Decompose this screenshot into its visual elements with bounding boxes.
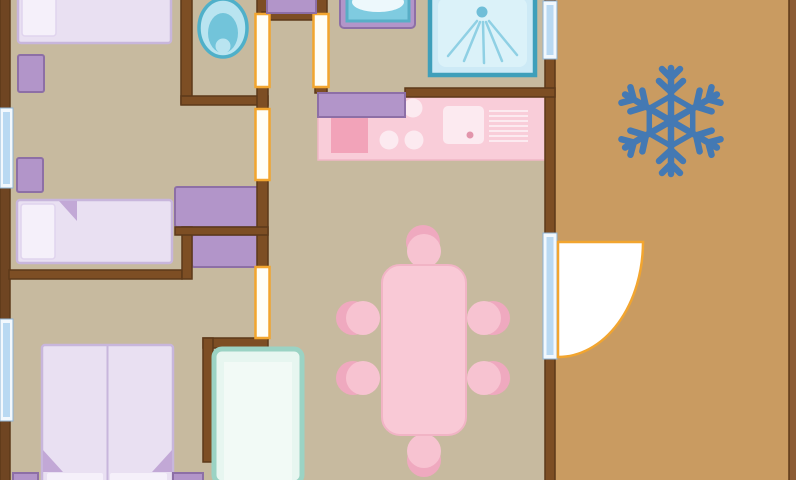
window-left-1 bbox=[0, 108, 13, 188]
single-bed-1-pillow bbox=[22, 0, 56, 36]
window-left-2 bbox=[0, 319, 13, 421]
twin-bedroom-door bbox=[256, 109, 270, 180]
window-bathroom bbox=[543, 1, 557, 59]
dining-chair bbox=[346, 361, 380, 395]
dining-chair bbox=[467, 361, 501, 395]
floor-plan-stage bbox=[0, 0, 796, 480]
wardrobe-master bbox=[192, 235, 262, 267]
hob-burner-3 bbox=[405, 131, 424, 150]
wardrobe-twin bbox=[175, 187, 262, 227]
nightstand-3 bbox=[13, 473, 38, 480]
hall-cabinet bbox=[267, 0, 316, 13]
wall-wardrobe-divider bbox=[175, 227, 268, 235]
master-bedroom-door bbox=[256, 267, 270, 338]
entry-door-glazing bbox=[547, 237, 554, 355]
kitchen-worktop-block bbox=[331, 116, 368, 153]
single-bed-2-pillow bbox=[21, 204, 55, 259]
wall-wc-bottom bbox=[181, 96, 268, 105]
wc-door bbox=[256, 14, 270, 87]
nightstand-1 bbox=[18, 55, 44, 92]
hob-burner-2 bbox=[380, 131, 399, 150]
nightstand-2 bbox=[17, 158, 43, 192]
dining-table bbox=[382, 265, 466, 435]
floor-plan bbox=[0, 0, 796, 480]
bathroom-door bbox=[314, 14, 329, 87]
drainer-grill bbox=[489, 111, 528, 141]
double-bed-pillow-right bbox=[110, 473, 167, 480]
wall-bathroom-bottom bbox=[405, 88, 555, 97]
kitchen-sink-drain bbox=[467, 132, 474, 139]
wall-twin-bedroom-bottom bbox=[9, 270, 182, 279]
dining-chair bbox=[407, 434, 441, 468]
toilet-drain bbox=[216, 39, 231, 54]
kitchen-wall-cabinet bbox=[318, 93, 405, 117]
hob-burner-1 bbox=[404, 99, 423, 118]
double-bed-pillow-left bbox=[47, 473, 103, 480]
dining-chair bbox=[467, 301, 501, 335]
nightstand-4 bbox=[173, 473, 203, 480]
dining-chair bbox=[346, 301, 380, 335]
wall-wc-left bbox=[181, 0, 192, 104]
wall-terrace-edge bbox=[789, 0, 796, 480]
dining-chair bbox=[407, 234, 441, 268]
kitchen-sink bbox=[443, 106, 484, 144]
storage-cabinet-teal bbox=[214, 349, 302, 480]
shower-head bbox=[477, 7, 488, 18]
wc-room bbox=[199, 0, 247, 57]
